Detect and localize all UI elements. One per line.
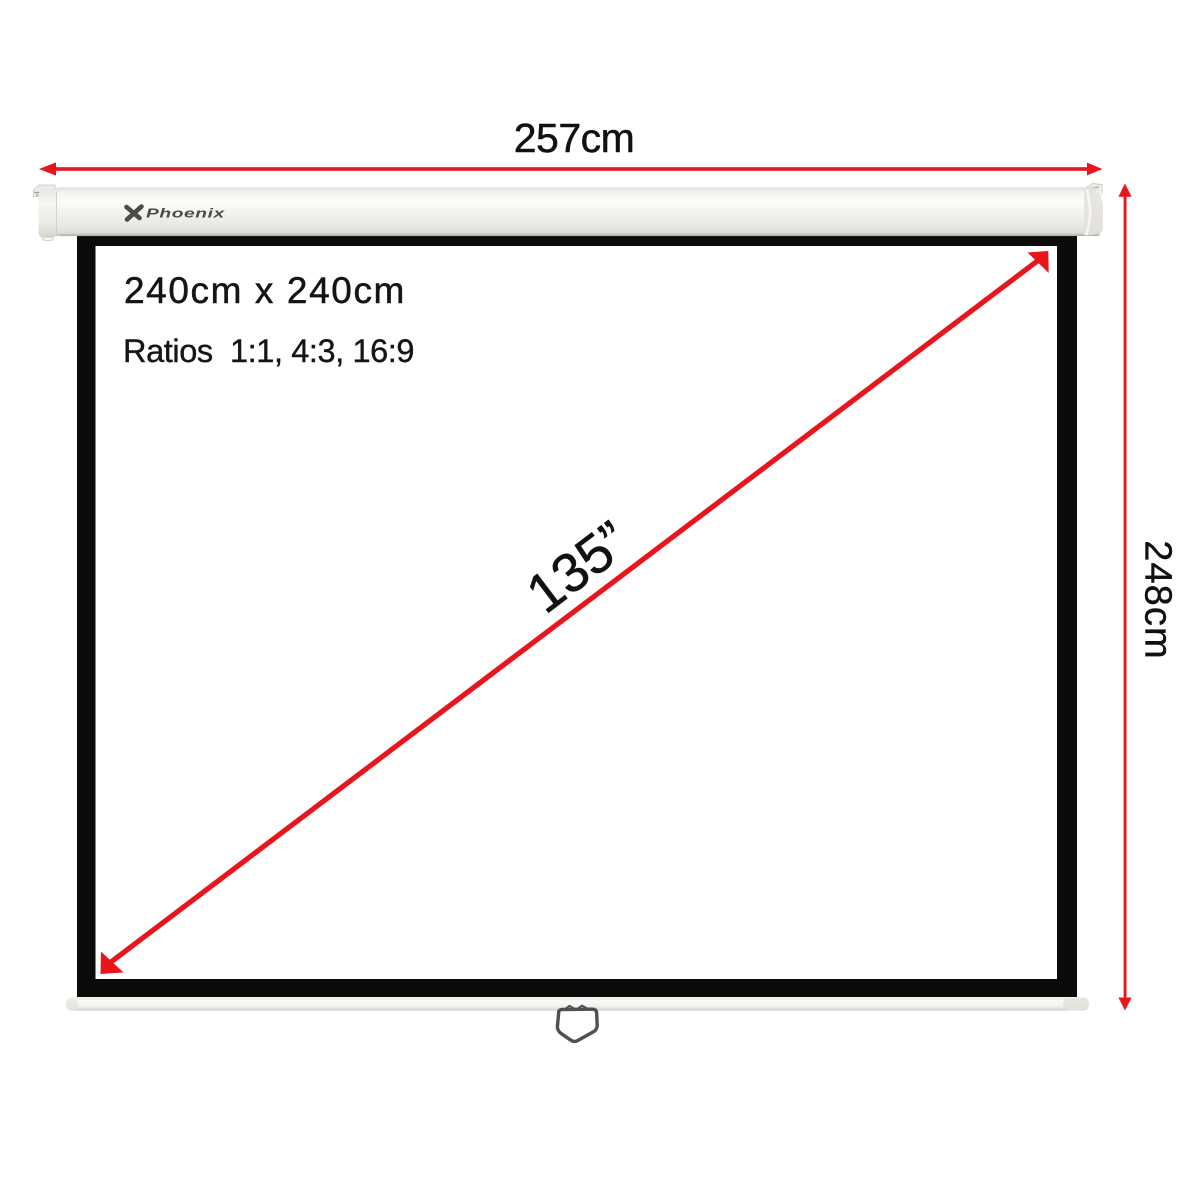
svg-text:257cm: 257cm: [514, 115, 635, 161]
svg-text:Ratios 1:1, 4:3, 16:9: Ratios 1:1, 4:3, 16:9: [123, 333, 414, 369]
svg-text:240cm x 240cm: 240cm x 240cm: [124, 270, 406, 311]
svg-text:Phoenix: Phoenix: [146, 207, 225, 221]
svg-text:248cm: 248cm: [1137, 540, 1179, 660]
